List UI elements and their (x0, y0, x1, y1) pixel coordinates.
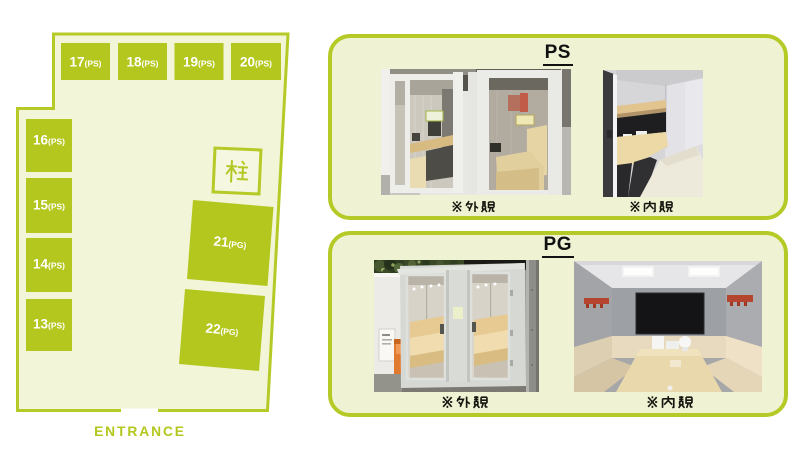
svg-text:ENTRANCE: ENTRANCE (94, 424, 186, 439)
